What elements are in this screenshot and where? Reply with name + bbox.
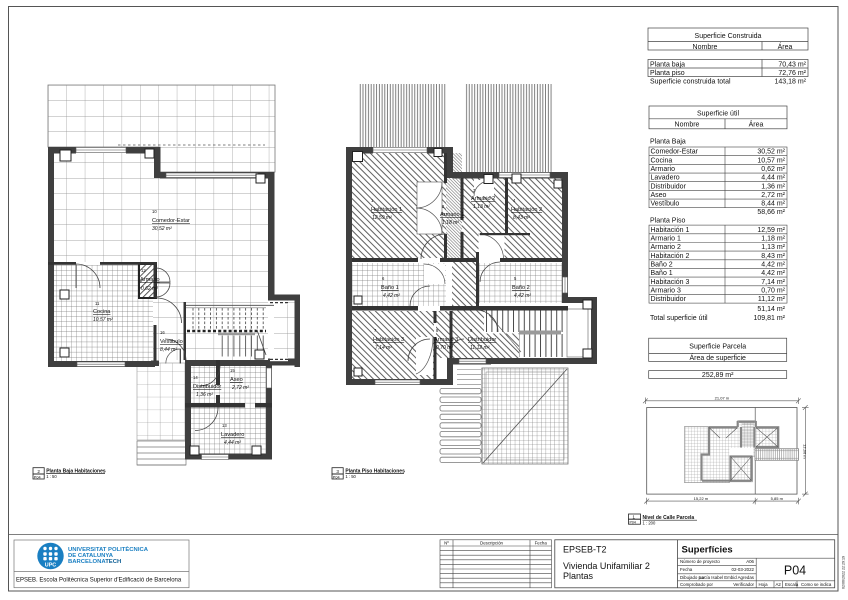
svg-text:1,13 m²: 1,13 m² bbox=[473, 204, 490, 210]
svg-text:Lavadero: Lavadero bbox=[651, 175, 680, 182]
svg-text:Área: Área bbox=[749, 120, 764, 129]
svg-text:P04: P04 bbox=[333, 475, 340, 479]
svg-text:12: 12 bbox=[141, 268, 146, 273]
svg-text:2,72 m²: 2,72 m² bbox=[231, 385, 249, 391]
svg-text:1 : 50: 1 : 50 bbox=[345, 474, 356, 479]
svg-text:Distribuidor: Distribuidor bbox=[651, 296, 687, 303]
svg-text:Total superficie útil: Total superficie útil bbox=[650, 315, 708, 322]
svg-text:7,14 m²: 7,14 m² bbox=[761, 279, 785, 286]
svg-text:02/06/2022 22:29:19: 02/06/2022 22:29:19 bbox=[842, 556, 846, 589]
svg-text:Superficie Construida: Superficie Construida bbox=[695, 33, 762, 40]
svg-text:P04: P04 bbox=[630, 521, 636, 525]
svg-text:8,44 m²: 8,44 m² bbox=[761, 201, 785, 208]
svg-text:Número de proyecto: Número de proyecto bbox=[680, 559, 720, 564]
svg-text:15,22 m: 15,22 m bbox=[694, 496, 709, 501]
svg-text:10: 10 bbox=[152, 209, 157, 214]
svg-text:Distribuidor: Distribuidor bbox=[651, 183, 687, 190]
svg-text:Planta baja: Planta baja bbox=[650, 61, 685, 68]
svg-text:10,57 m²: 10,57 m² bbox=[93, 317, 113, 323]
svg-text:Aseo: Aseo bbox=[230, 377, 243, 383]
svg-text:Armario 3: Armario 3 bbox=[434, 337, 458, 343]
svg-text:12,06 m: 12,06 m bbox=[803, 444, 808, 459]
svg-text:8,44 m²: 8,44 m² bbox=[160, 347, 177, 353]
svg-text:Superfícies: Superfícies bbox=[682, 544, 733, 555]
svg-text:4,42 m²: 4,42 m² bbox=[761, 261, 785, 268]
svg-text:Hoja: Hoja bbox=[759, 582, 769, 587]
svg-text:51,14 m²: 51,14 m² bbox=[757, 306, 785, 313]
svg-text:Habitación 2: Habitación 2 bbox=[511, 207, 542, 213]
svg-text:Comedor-Estar: Comedor-Estar bbox=[152, 218, 190, 224]
svg-text:1 : 200: 1 : 200 bbox=[643, 520, 656, 525]
svg-text:1,18 m²: 1,18 m² bbox=[761, 236, 785, 243]
svg-text:4,42 m²: 4,42 m² bbox=[383, 293, 400, 299]
svg-text:Vestibulo: Vestibulo bbox=[160, 339, 183, 345]
svg-text:0,70 m²: 0,70 m² bbox=[436, 345, 453, 351]
svg-text:4,42 m²: 4,42 m² bbox=[761, 270, 785, 277]
svg-text:02-03-2022: 02-03-2022 bbox=[732, 567, 755, 572]
svg-text:1,36 m²: 1,36 m² bbox=[761, 183, 785, 190]
svg-text:Área de superficie: Área de superficie bbox=[689, 353, 746, 362]
svg-text:Planta Baja: Planta Baja bbox=[650, 139, 686, 146]
svg-text:11: 11 bbox=[95, 301, 100, 306]
svg-text:Habitación 1: Habitación 1 bbox=[371, 207, 402, 213]
svg-text:2: 2 bbox=[37, 469, 40, 474]
svg-text:10,57 m²: 10,57 m² bbox=[757, 157, 785, 164]
svg-text:13: 13 bbox=[222, 423, 227, 428]
svg-text:Nombre: Nombre bbox=[693, 44, 718, 51]
svg-text:Armario 2: Armario 2 bbox=[651, 244, 681, 251]
svg-text:7,14 m²: 7,14 m² bbox=[375, 345, 392, 351]
svg-text:Habitación 3: Habitación 3 bbox=[651, 279, 690, 286]
svg-text:Habitación 3: Habitación 3 bbox=[373, 337, 404, 343]
svg-text:Armario 2: Armario 2 bbox=[471, 196, 495, 202]
svg-text:109,81 m²: 109,81 m² bbox=[753, 315, 785, 322]
svg-text:1: 1 bbox=[633, 514, 636, 519]
svg-text:Armario 3: Armario 3 bbox=[651, 287, 681, 294]
svg-text:Armario 1: Armario 1 bbox=[440, 212, 464, 218]
svg-text:72,76 m²: 72,76 m² bbox=[778, 70, 806, 77]
svg-text:1,13 m²: 1,13 m² bbox=[761, 244, 785, 251]
svg-text:14: 14 bbox=[193, 375, 198, 380]
svg-text:Cocina: Cocina bbox=[93, 309, 111, 315]
svg-text:Fecha: Fecha bbox=[535, 541, 548, 546]
svg-text:Verificador: Verificador bbox=[733, 582, 754, 587]
svg-text:Nº: Nº bbox=[444, 541, 449, 546]
svg-text:16: 16 bbox=[160, 330, 165, 335]
svg-text:30,52 m²: 30,52 m² bbox=[152, 226, 172, 232]
svg-text:P04: P04 bbox=[784, 564, 806, 578]
svg-text:11,12 m²: 11,12 m² bbox=[470, 345, 490, 351]
svg-text:Baño 1: Baño 1 bbox=[381, 285, 399, 291]
svg-text:0,62 m²: 0,62 m² bbox=[761, 166, 785, 173]
svg-text:2,72 m²: 2,72 m² bbox=[761, 192, 785, 199]
svg-text:Escala: Escala bbox=[785, 582, 799, 587]
svg-text:12,59 m²: 12,59 m² bbox=[372, 215, 392, 221]
svg-text:11,12 m²: 11,12 m² bbox=[758, 296, 786, 303]
svg-text:Fecha: Fecha bbox=[680, 567, 693, 572]
svg-text:1,36 m²: 1,36 m² bbox=[196, 392, 213, 398]
svg-text:21,07 m: 21,07 m bbox=[715, 395, 730, 400]
svg-text:A06: A06 bbox=[746, 559, 754, 564]
svg-text:Habitación 2: Habitación 2 bbox=[651, 253, 690, 260]
svg-text:Baño 2: Baño 2 bbox=[651, 261, 673, 268]
svg-text:143,18 m²: 143,18 m² bbox=[774, 78, 806, 85]
svg-text:Superficie construida total: Superficie construida total bbox=[650, 78, 731, 85]
svg-text:Armario 1: Armario 1 bbox=[651, 236, 681, 243]
svg-text:Comprobado por: Comprobado por bbox=[680, 582, 713, 587]
svg-text:8,43 m²: 8,43 m² bbox=[513, 215, 530, 221]
svg-text:70,43 m²: 70,43 m² bbox=[778, 61, 806, 68]
svg-text:5,85 m: 5,85 m bbox=[771, 496, 784, 501]
svg-text:Planta piso: Planta piso bbox=[650, 70, 685, 77]
svg-text:P04: P04 bbox=[34, 475, 41, 479]
svg-text:UPC: UPC bbox=[45, 563, 56, 569]
svg-text:Distribuidor: Distribuidor bbox=[193, 384, 221, 390]
svg-text:Armario: Armario bbox=[140, 277, 160, 283]
svg-text:12,59 m²: 12,59 m² bbox=[757, 227, 785, 234]
svg-text:Armario: Armario bbox=[651, 166, 676, 173]
svg-text:Aseo: Aseo bbox=[651, 192, 667, 199]
svg-text:EPSEB. Escola Politècnica Supe: EPSEB. Escola Politècnica Superior d'Edi… bbox=[16, 578, 182, 584]
svg-text:Como se indica: Como se indica bbox=[801, 582, 832, 587]
svg-text:Cocina: Cocina bbox=[651, 157, 673, 164]
svg-text:EPSEB-T2: EPSEB-T2 bbox=[563, 545, 607, 555]
svg-text:Vivienda Unifamiliar 2: Vivienda Unifamiliar 2 bbox=[563, 561, 650, 571]
svg-text:4,44 m²: 4,44 m² bbox=[224, 440, 241, 446]
svg-text:Distribuidor: Distribuidor bbox=[468, 337, 496, 343]
svg-text:Plantas: Plantas bbox=[563, 571, 594, 581]
svg-text:Nombre: Nombre bbox=[675, 122, 700, 129]
svg-text:Planta Piso: Planta Piso bbox=[650, 217, 686, 224]
svg-text:Baño 2: Baño 2 bbox=[512, 285, 530, 291]
svg-text:1 : 50: 1 : 50 bbox=[46, 474, 57, 479]
svg-text:A2: A2 bbox=[776, 582, 782, 587]
svg-text:Vestíbulo: Vestíbulo bbox=[651, 201, 680, 208]
svg-text:4,42 m²: 4,42 m² bbox=[514, 293, 531, 299]
svg-text:Lucía Isabel Embid Agredas: Lucía Isabel Embid Agredas bbox=[699, 575, 754, 580]
svg-text:3: 3 bbox=[336, 469, 339, 474]
svg-text:0,62 m²: 0,62 m² bbox=[141, 286, 158, 292]
svg-text:Habitación 1: Habitación 1 bbox=[651, 227, 690, 234]
svg-text:Superficie Parcela: Superficie Parcela bbox=[689, 343, 746, 350]
svg-text:Baño 1: Baño 1 bbox=[651, 270, 673, 277]
svg-text:30,52 m²: 30,52 m² bbox=[757, 149, 785, 156]
svg-text:252,89 m²: 252,89 m² bbox=[702, 372, 734, 379]
svg-text:4,44 m²: 4,44 m² bbox=[761, 175, 785, 182]
svg-text:15: 15 bbox=[230, 368, 235, 373]
svg-text:Descripción: Descripción bbox=[480, 541, 503, 546]
svg-text:1,18 m²: 1,18 m² bbox=[442, 220, 459, 226]
svg-text:Área: Área bbox=[778, 42, 793, 51]
svg-text:BARCELONATECH: BARCELONATECH bbox=[68, 559, 121, 565]
svg-text:8,43 m²: 8,43 m² bbox=[761, 253, 785, 260]
svg-text:Comedor-Estar: Comedor-Estar bbox=[651, 149, 699, 156]
svg-text:0,70 m²: 0,70 m² bbox=[761, 287, 785, 294]
svg-text:58,66 m²: 58,66 m² bbox=[757, 209, 785, 216]
svg-text:Lavadero: Lavadero bbox=[221, 432, 244, 438]
svg-text:UNIVERSITAT POLITÈCNICA: UNIVERSITAT POLITÈCNICA bbox=[68, 545, 149, 553]
svg-text:Superficie útil: Superficie útil bbox=[697, 110, 739, 117]
